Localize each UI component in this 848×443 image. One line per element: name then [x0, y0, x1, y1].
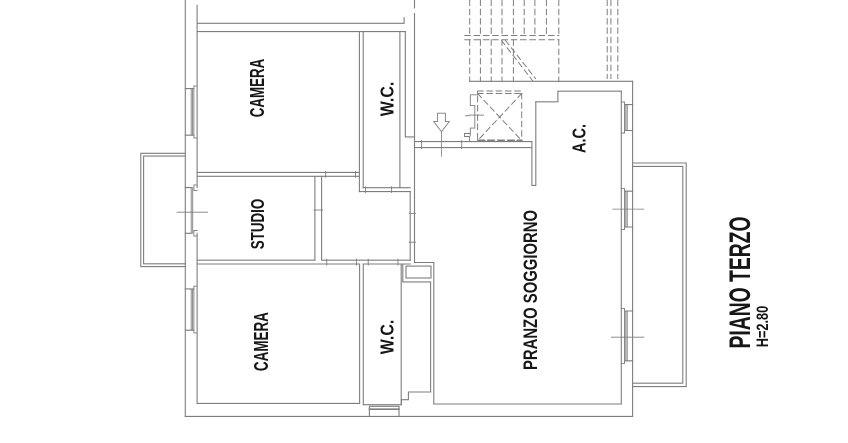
- svg-text:A.C.: A.C.: [569, 124, 590, 153]
- svg-text:H=2.80: H=2.80: [753, 306, 772, 348]
- svg-text:W.C.: W.C.: [378, 82, 398, 117]
- svg-text:W.C.: W.C.: [378, 320, 398, 355]
- svg-text:CAMERA: CAMERA: [251, 312, 273, 371]
- svg-text:PIANO TERZO: PIANO TERZO: [724, 217, 757, 349]
- svg-text:CAMERA: CAMERA: [247, 59, 269, 118]
- svg-text:PRANZO SOGGIORNO: PRANZO SOGGIORNO: [520, 210, 542, 370]
- svg-text:STUDIO: STUDIO: [248, 199, 268, 250]
